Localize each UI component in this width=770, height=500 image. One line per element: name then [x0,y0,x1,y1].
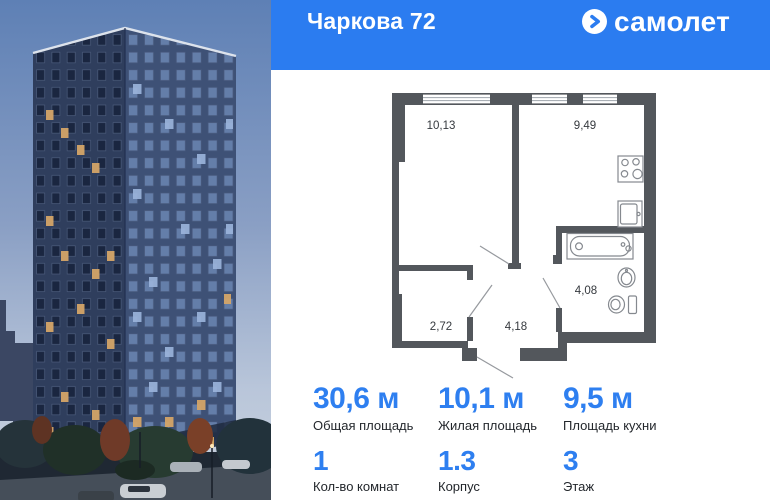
logo-text: самолет [614,9,730,34]
card-header: Чаркова 72 самолет [271,0,770,70]
wash-basin-icon [618,268,635,287]
kitchen-sink-icon [618,201,642,227]
stat-label: Площадь кухни [563,419,713,432]
room-area-label: 10,13 [427,120,456,132]
room-area-label: 4,18 [505,321,527,333]
stat-value: 9,5 м [563,384,713,414]
project-title: Чаркова 72 [307,8,436,35]
stat-kitchen-area: 9,5 м Площадь кухни [563,384,713,432]
window [583,93,617,105]
stat-value: 3 [563,447,713,475]
listing-card: Чаркова 72 самолет [0,0,770,500]
window [423,93,490,105]
bathtub-icon [567,234,633,260]
room-area-label: 9,49 [574,120,596,132]
floor-plan: 10,13 9,49 4,08 2,72 4,18 [388,88,660,382]
red-tree [100,419,130,461]
toilet-icon [609,296,637,314]
building-photo-scene [0,0,271,500]
stat-label: Этаж [563,480,713,493]
stove-icon [618,156,643,182]
arrow-right-circle-icon [582,9,607,34]
red-tree [187,418,213,454]
window [532,93,567,105]
building-photo [0,0,271,500]
red-tree [32,416,52,444]
stat-floor-number: 3 Этаж [563,447,713,493]
room-area-label: 4,08 [575,285,597,297]
samolet-logo: самолет [582,9,730,34]
info-panel: Чаркова 72 самолет [271,0,770,500]
residential-tower [33,28,236,467]
room-area-label: 2,72 [430,321,452,333]
